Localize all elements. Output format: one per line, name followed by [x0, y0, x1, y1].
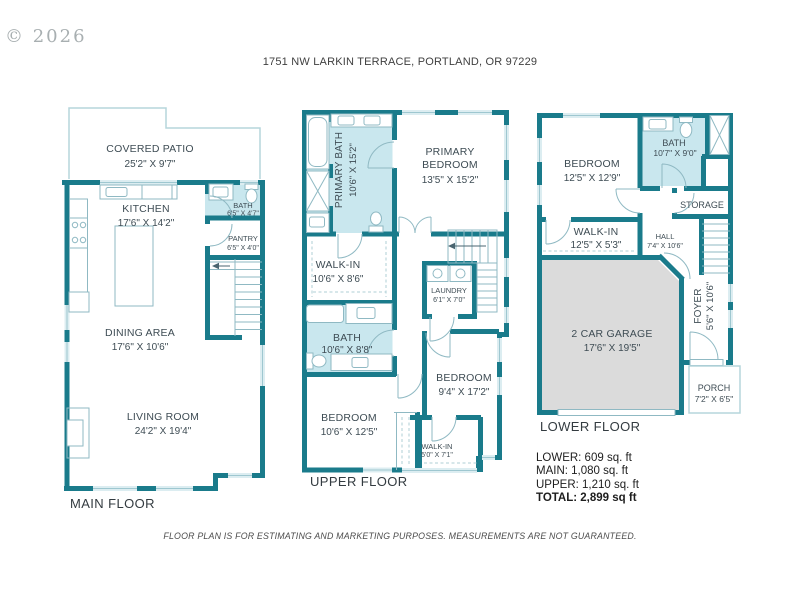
room-label-laundry: LAUNDRY	[431, 286, 467, 295]
room-dims-lower-bath: 10'7" X 9'0"	[653, 148, 696, 158]
room-dims-bedroom-right: 9'4" X 17'2"	[439, 387, 490, 398]
bathtub-icon	[307, 305, 344, 323]
room-label-lower-walkin: WALK-IN	[574, 226, 619, 238]
room-dims-garage: 17'6" X 19'5"	[584, 343, 641, 354]
fireplace-icon	[67, 408, 89, 458]
disclaimer-text: FLOOR PLAN IS FOR ESTIMATING AND MARKETI…	[0, 531, 800, 541]
main-stairs	[210, 259, 262, 336]
room-label-primary-bath: PRIMARY BATH	[334, 132, 345, 208]
entry-threshold	[690, 360, 723, 366]
room-dims-dining: 17'6" X 10'6"	[112, 342, 169, 353]
room-label-main-bath: BATH	[233, 201, 252, 210]
room-dims-upper-bath: 10'6" X 8'8"	[322, 345, 373, 356]
toilet-icon	[680, 117, 693, 123]
room-dims-lower-bedroom: 12'5" X 12'9"	[564, 173, 621, 184]
area-summary: LOWER: 609 sq. ft MAIN: 1,080 sq. ft UPP…	[536, 452, 639, 506]
room-label-covered-patio: COVERED PATIO	[106, 143, 193, 155]
lower-floor-plan: BEDROOM 12'5" X 12'9" BATH 10'7" X 9'0" …	[537, 113, 740, 434]
room-dims-walkin: 10'6" X 8'6"	[313, 274, 364, 285]
room-dims-foyer: 5'6" X 10'6"	[705, 282, 716, 330]
stove-icon	[69, 199, 89, 312]
area-main: MAIN: 1,080 sq. ft	[536, 465, 639, 478]
room-label-pantry: PANTRY	[228, 234, 258, 243]
room-label-dining: DINING AREA	[105, 327, 175, 339]
upper-floor-plan: PRIMARY BATH 10'6" X 15'2" PRIMARY BEDRO…	[302, 110, 509, 489]
main-floor-label: MAIN FLOOR	[70, 496, 155, 511]
room-label-bedroom-left: BEDROOM	[321, 412, 377, 424]
room-label-garage: 2 CAR GARAGE	[571, 328, 652, 340]
room-dims-kitchen: 17'6" X 14'2"	[118, 218, 175, 229]
room-label-walkin: WALK-IN	[316, 259, 361, 271]
room-dims-main-bath: 6'5" X 4'7"	[227, 211, 259, 218]
toilet-icon	[369, 226, 383, 232]
room-dims-bedroom-left: 10'6" X 12'5"	[321, 427, 378, 438]
room-dims-hall: 7'4" X 10'6"	[647, 243, 683, 250]
room-label-lower-bath: BATH	[662, 138, 685, 148]
area-lower: LOWER: 609 sq. ft	[536, 452, 639, 465]
room-label-foyer: FOYER	[693, 288, 704, 323]
room-dims-primary-bath: 10'6" X 15'2"	[348, 143, 359, 197]
kitchen-counter	[100, 185, 177, 199]
refrigerator-icon	[69, 292, 89, 312]
room-label-lower-bedroom: BEDROOM	[564, 158, 620, 170]
bathtub-icon	[307, 115, 330, 169]
area-total: TOTAL: 2,899 sq ft	[536, 492, 639, 505]
room-dims-porch: 7'2" X 6'5"	[695, 394, 734, 404]
garage-door	[558, 410, 675, 416]
lower-floor-label: LOWER FLOOR	[540, 419, 640, 434]
room-label-primary-bedroom-1: PRIMARY	[425, 146, 474, 158]
lower-stairs	[702, 224, 730, 273]
washer-dryer-icon	[427, 266, 471, 282]
main-floor-plan: COVERED PATIO 25'2" X 9'7" KITCHEN 17'6"…	[62, 108, 265, 511]
room-dims-primary-bedroom: 13'5" X 15'2"	[422, 175, 479, 186]
room-label-storage: STORAGE	[680, 200, 724, 210]
room-label-living: LIVING ROOM	[127, 411, 199, 423]
room-label-bedroom-right: BEDROOM	[436, 372, 492, 384]
room-dims-walkin-small: 5'0" X 7'1"	[421, 452, 453, 459]
room-label-kitchen: KITCHEN	[122, 203, 170, 215]
room-dims-covered-patio: 25'2" X 9'7"	[125, 159, 176, 170]
room-dims-laundry: 6'1" X 7'0"	[433, 297, 465, 304]
room-dims-lower-walkin: 12'5" X 5'3"	[571, 240, 622, 251]
room-label-porch: PORCH	[698, 383, 731, 393]
kitchen-island	[115, 226, 153, 306]
room-label-primary-bedroom-2: BEDROOM	[422, 159, 478, 171]
room-label-upper-bath: BATH	[333, 332, 361, 344]
floor-plan-page: © 2026 1751 NW LARKIN TERRACE, PORTLAND,…	[0, 0, 800, 600]
floor-plans-svg: COVERED PATIO 25'2" X 9'7" KITCHEN 17'6"…	[0, 0, 800, 600]
room-dims-living: 24'2" X 19'4"	[135, 426, 192, 437]
room-dims-pantry: 6'5" X 4'0"	[227, 245, 259, 252]
walkin-door-arc	[338, 234, 362, 258]
upper-floor-label: UPPER FLOOR	[310, 474, 408, 489]
room-label-hall: HALL	[656, 232, 675, 241]
area-upper: UPPER: 1,210 sq. ft	[536, 479, 639, 492]
room-label-walkin-small: WALK-IN	[422, 442, 453, 451]
